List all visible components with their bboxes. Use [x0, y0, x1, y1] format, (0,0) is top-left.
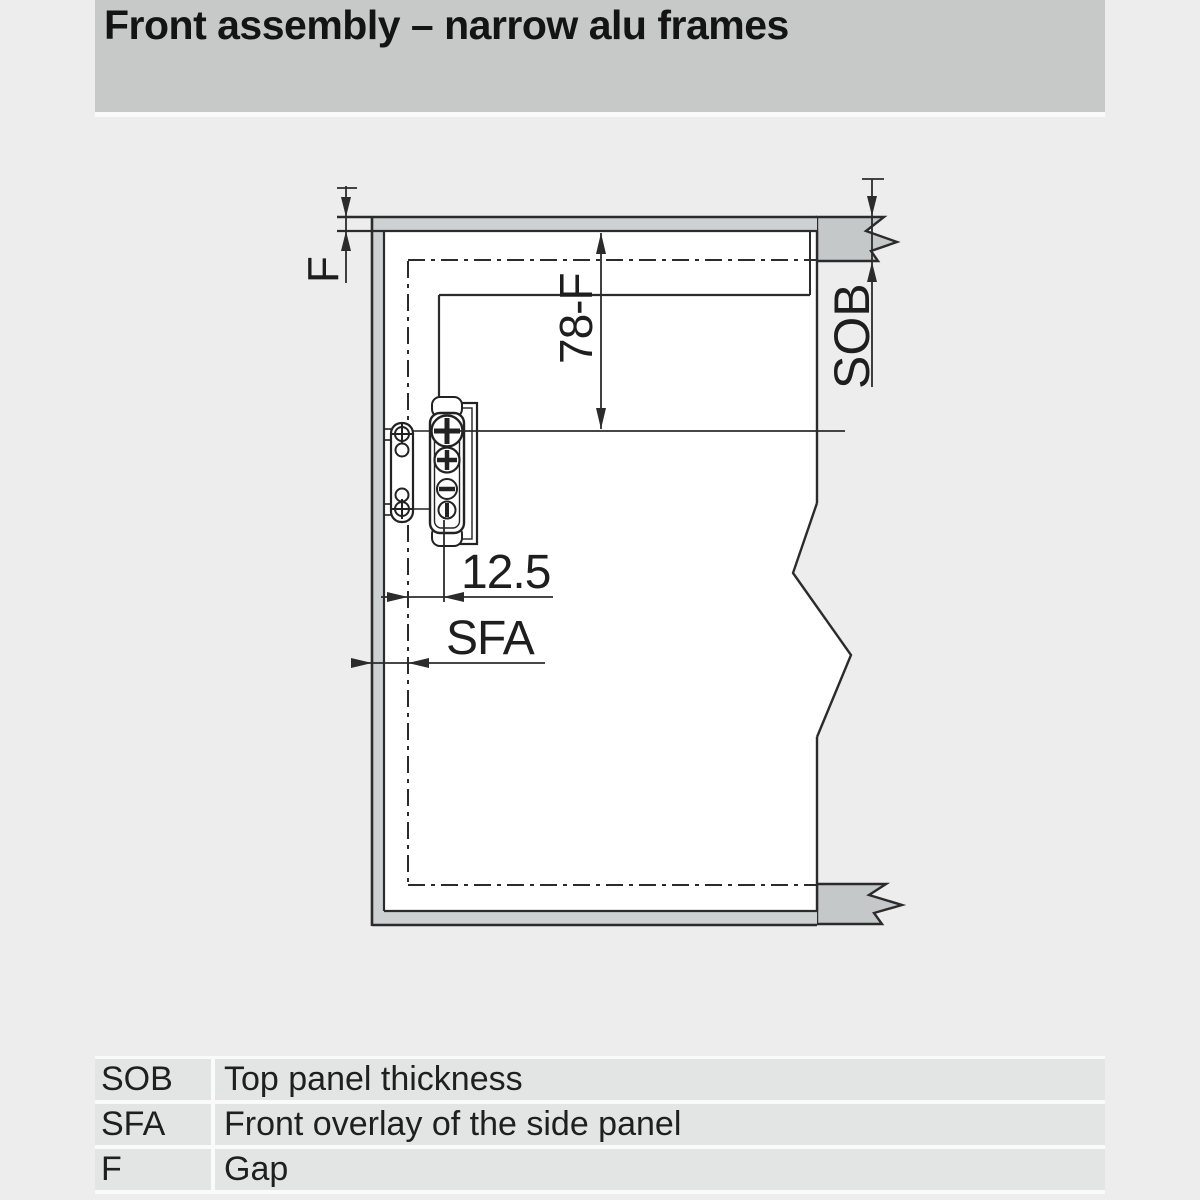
legend-row-f: F Gap [95, 1149, 1105, 1190]
legend-abbr: F [95, 1149, 211, 1190]
top-panel-section [817, 217, 897, 261]
hinge-screw-mid [435, 448, 460, 473]
legend-row-sfa: SFA Front overlay of the side panel [95, 1104, 1105, 1145]
legend-table: SOB Top panel thickness SFA Front overla… [95, 1056, 1105, 1194]
label-12-5: 12.5 [461, 546, 550, 599]
legend-desc: Gap [215, 1149, 1105, 1190]
bottom-panel-section [817, 884, 902, 924]
label-sfa: SFA [446, 612, 535, 665]
legend-row-sob: SOB Top panel thickness [95, 1059, 1105, 1100]
legend-bottom-divider [95, 1190, 1105, 1194]
legend-abbr: SOB [95, 1059, 211, 1100]
hinge-mounting-plate [391, 423, 413, 522]
label-sob: SOB [824, 283, 880, 389]
label-78-f: 78-F [550, 273, 602, 364]
assembly-diagram: F 78-F SOB 12.5 SFA [0, 0, 1200, 1200]
hinge-screw-top [432, 416, 463, 447]
legend-desc: Front overlay of the side panel [215, 1104, 1105, 1145]
legend-abbr: SFA [95, 1104, 211, 1145]
label-gap-f: F [299, 256, 348, 283]
legend-desc: Top panel thickness [215, 1059, 1105, 1100]
